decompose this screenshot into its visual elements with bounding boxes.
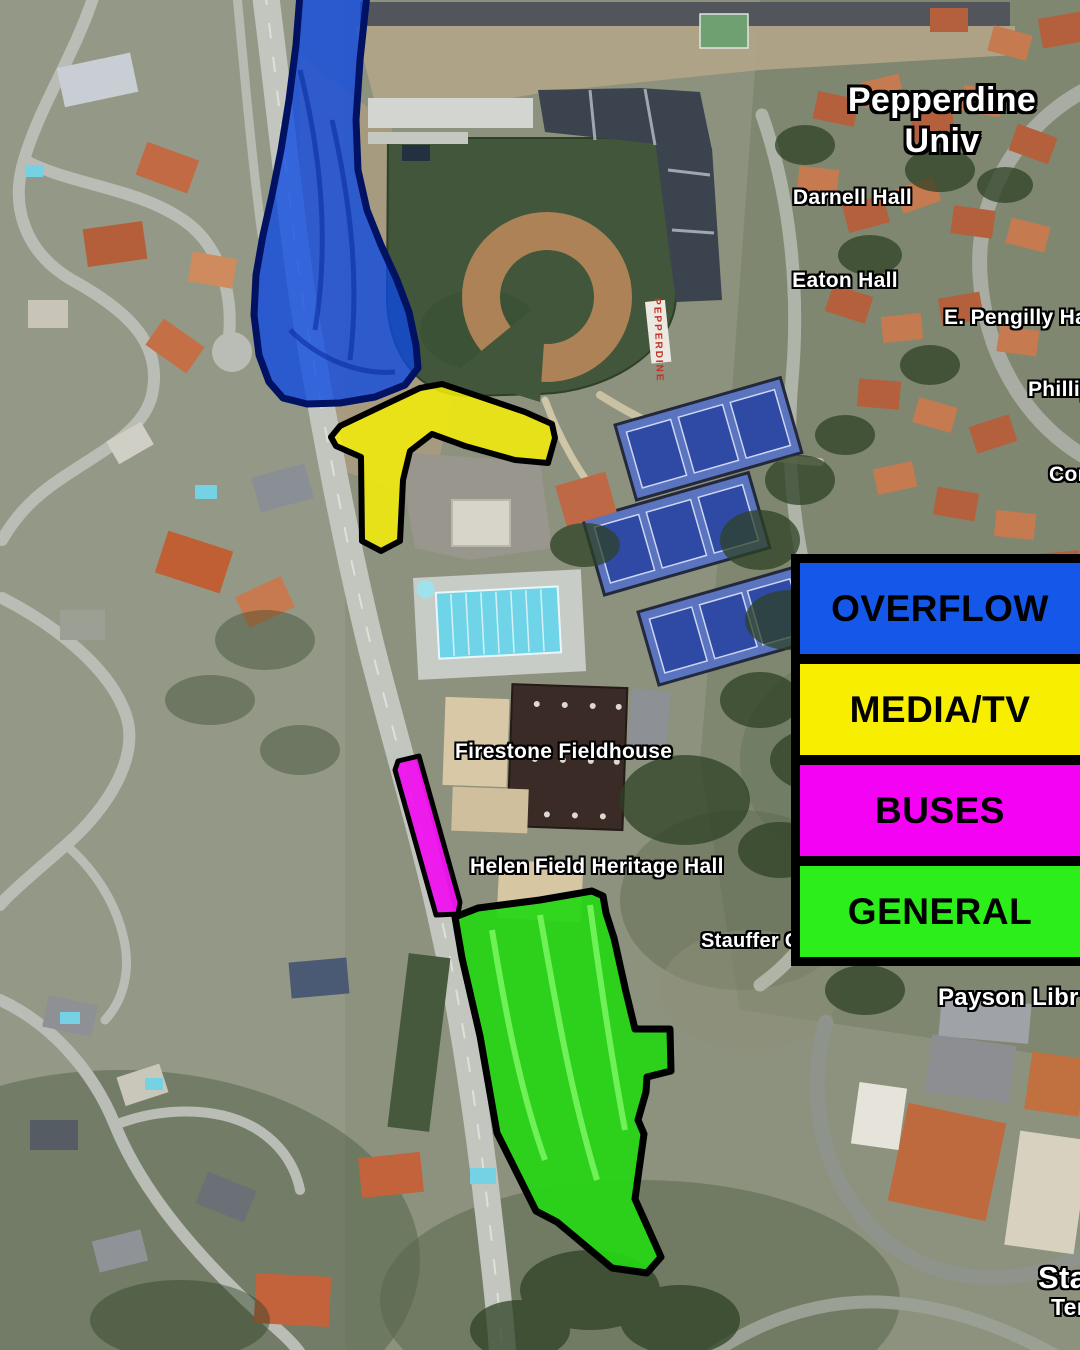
- parking-map: Pepperdine Univ Darnell Hall Eaton Hall …: [0, 0, 1080, 1350]
- legend-row-buses: BUSES: [800, 765, 1080, 856]
- label-darnell-hall: Darnell Hall: [770, 186, 935, 210]
- label-payson-library: Payson Libr: [938, 984, 1079, 1012]
- label-firestone-fieldhouse: Firestone Fieldhouse: [455, 740, 672, 764]
- label-phillips: Phillips: [1028, 378, 1080, 402]
- label-ter: Ter: [1051, 1294, 1080, 1321]
- label-pepperdine-univ: Pepperdine Univ: [810, 80, 1074, 162]
- baseball-field-group: [387, 138, 676, 402]
- legend-row-general: GENERAL: [800, 866, 1080, 957]
- label-sta: Sta: [1038, 1260, 1080, 1296]
- legend-row-media-tv: MEDIA/TV: [800, 664, 1080, 755]
- legend: OVERFLOW MEDIA/TV BUSES GENERAL: [791, 554, 1080, 966]
- label-eaton-hall: Eaton Hall: [765, 269, 925, 293]
- label-stauffer: Stauffer C: [701, 930, 800, 953]
- label-pengilly-hall: E. Pengilly Hall: [944, 306, 1080, 330]
- legend-row-overflow: OVERFLOW: [800, 563, 1080, 654]
- pool-group: [413, 569, 586, 680]
- label-helen-field-heritage-hall: Helen Field Heritage Hall: [470, 855, 724, 879]
- label-cor: Cor: [1049, 463, 1080, 487]
